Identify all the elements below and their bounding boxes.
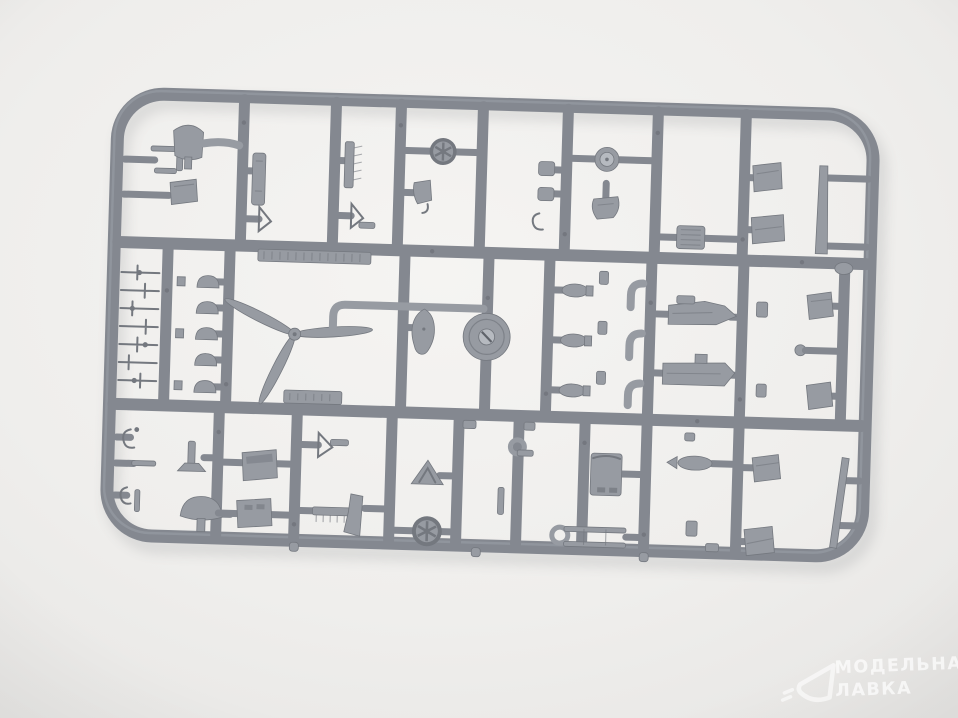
sprue-photo: МОДЕЛЬНАЯ ЛАВКА — [0, 0, 958, 718]
part-embossed-label-plate-small — [284, 390, 342, 405]
watermark-text-line1: МОДЕЛЬНАЯ — [834, 653, 958, 678]
watermark-text-line2: ЛАВКА — [835, 679, 912, 702]
photo-canvas: МОДЕЛЬНАЯ ЛАВКА — [0, 0, 958, 718]
